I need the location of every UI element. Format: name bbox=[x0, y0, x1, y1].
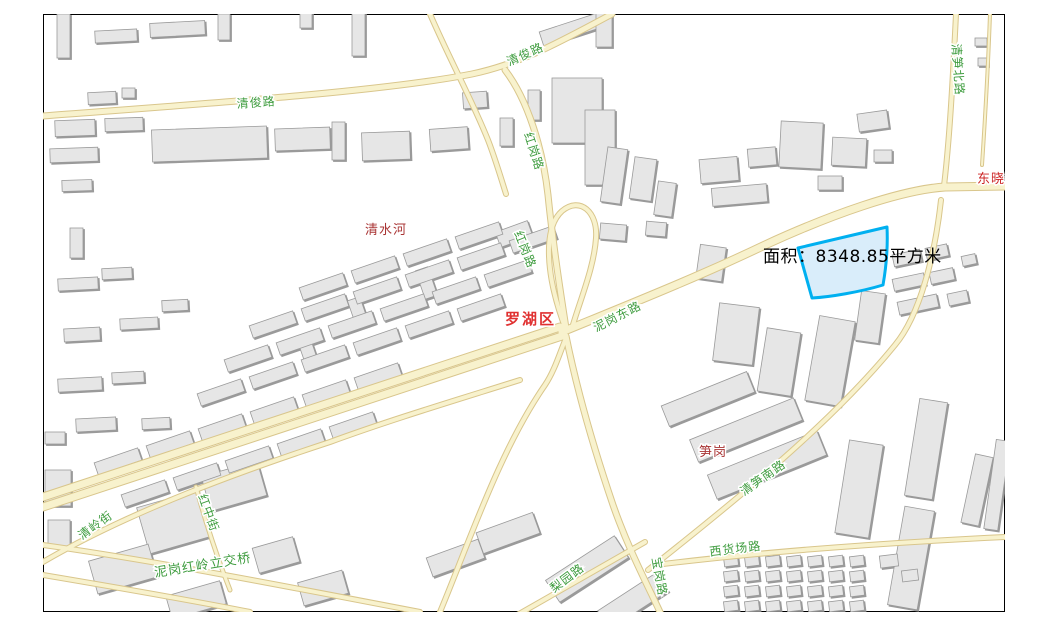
map-canvas[interactable]: 清俊路 清俊路 红岗路 红岗路 泥岗东路 清笋北路 清笋南路 西货场路 梨园路 … bbox=[0, 0, 1045, 623]
place-label-dongxiao: 东晓 bbox=[977, 172, 1005, 187]
map-svg: 清俊路 清俊路 红岗路 红岗路 泥岗东路 清笋北路 清笋南路 西货场路 梨园路 … bbox=[0, 0, 1045, 623]
district-label-luohu: 罗湖区 bbox=[505, 310, 556, 328]
place-label-sungang: 笋岗 bbox=[699, 444, 727, 460]
place-label-qingshuihe: 清水河 bbox=[365, 223, 407, 238]
map-viewport: 清俊路 清俊路 红岗路 红岗路 泥岗东路 清笋北路 清笋南路 西货场路 梨园路 … bbox=[0, 0, 1045, 623]
road-label-qingjun-road-west: 清俊路 bbox=[236, 93, 276, 111]
area-measurement-label: 面积：8348.85平方米 bbox=[763, 247, 942, 267]
